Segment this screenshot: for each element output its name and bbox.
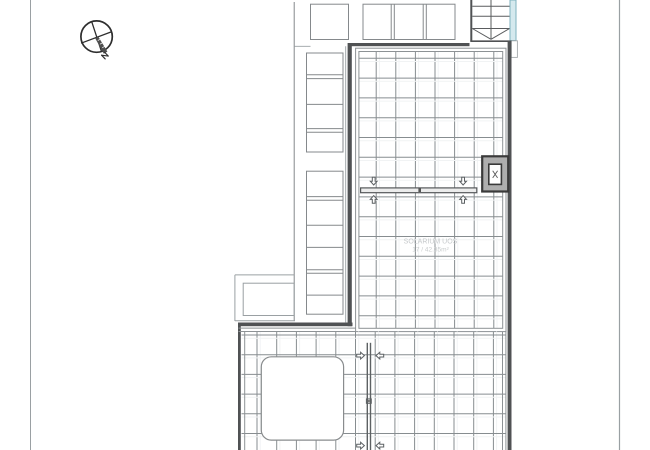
svg-text:SOLARIUM UOS: SOLARIUM UOS (404, 239, 458, 246)
svg-text:17 / 42.35m²: 17 / 42.35m² (412, 247, 449, 254)
